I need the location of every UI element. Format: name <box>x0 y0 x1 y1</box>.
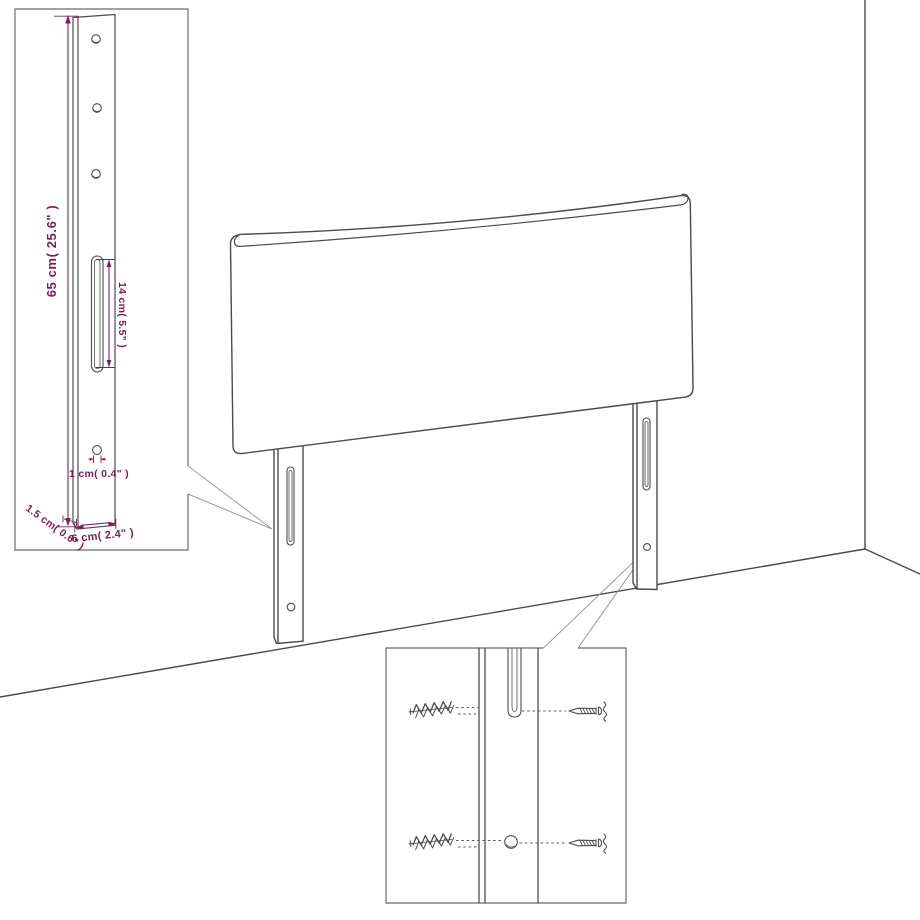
fixing-inset <box>386 648 626 903</box>
label-post-height: 65 cm( 25.6" ) <box>44 205 59 298</box>
right-leg <box>633 401 657 590</box>
diagram-canvas: 65 cm( 25.6" ) 14 cm( 5.5" ) 1 cm( 0.4" … <box>0 0 920 920</box>
headboard-panel <box>231 194 694 453</box>
left-inset-callout-lines <box>188 466 272 529</box>
left-leg <box>274 447 303 644</box>
label-hole-diameter: 1 cm( 0.4" ) <box>69 468 129 480</box>
bottom-inset-callout-lines <box>544 551 647 649</box>
floor-wall-line-right <box>865 549 920 574</box>
dimension-inset: 65 cm( 25.6" ) 14 cm( 5.5" ) 1 cm( 0.4" … <box>15 9 188 553</box>
headboard-panel-face <box>231 196 694 454</box>
callout-lines <box>188 466 647 648</box>
label-slot-length: 14 cm( 5.5" ) <box>116 282 128 348</box>
